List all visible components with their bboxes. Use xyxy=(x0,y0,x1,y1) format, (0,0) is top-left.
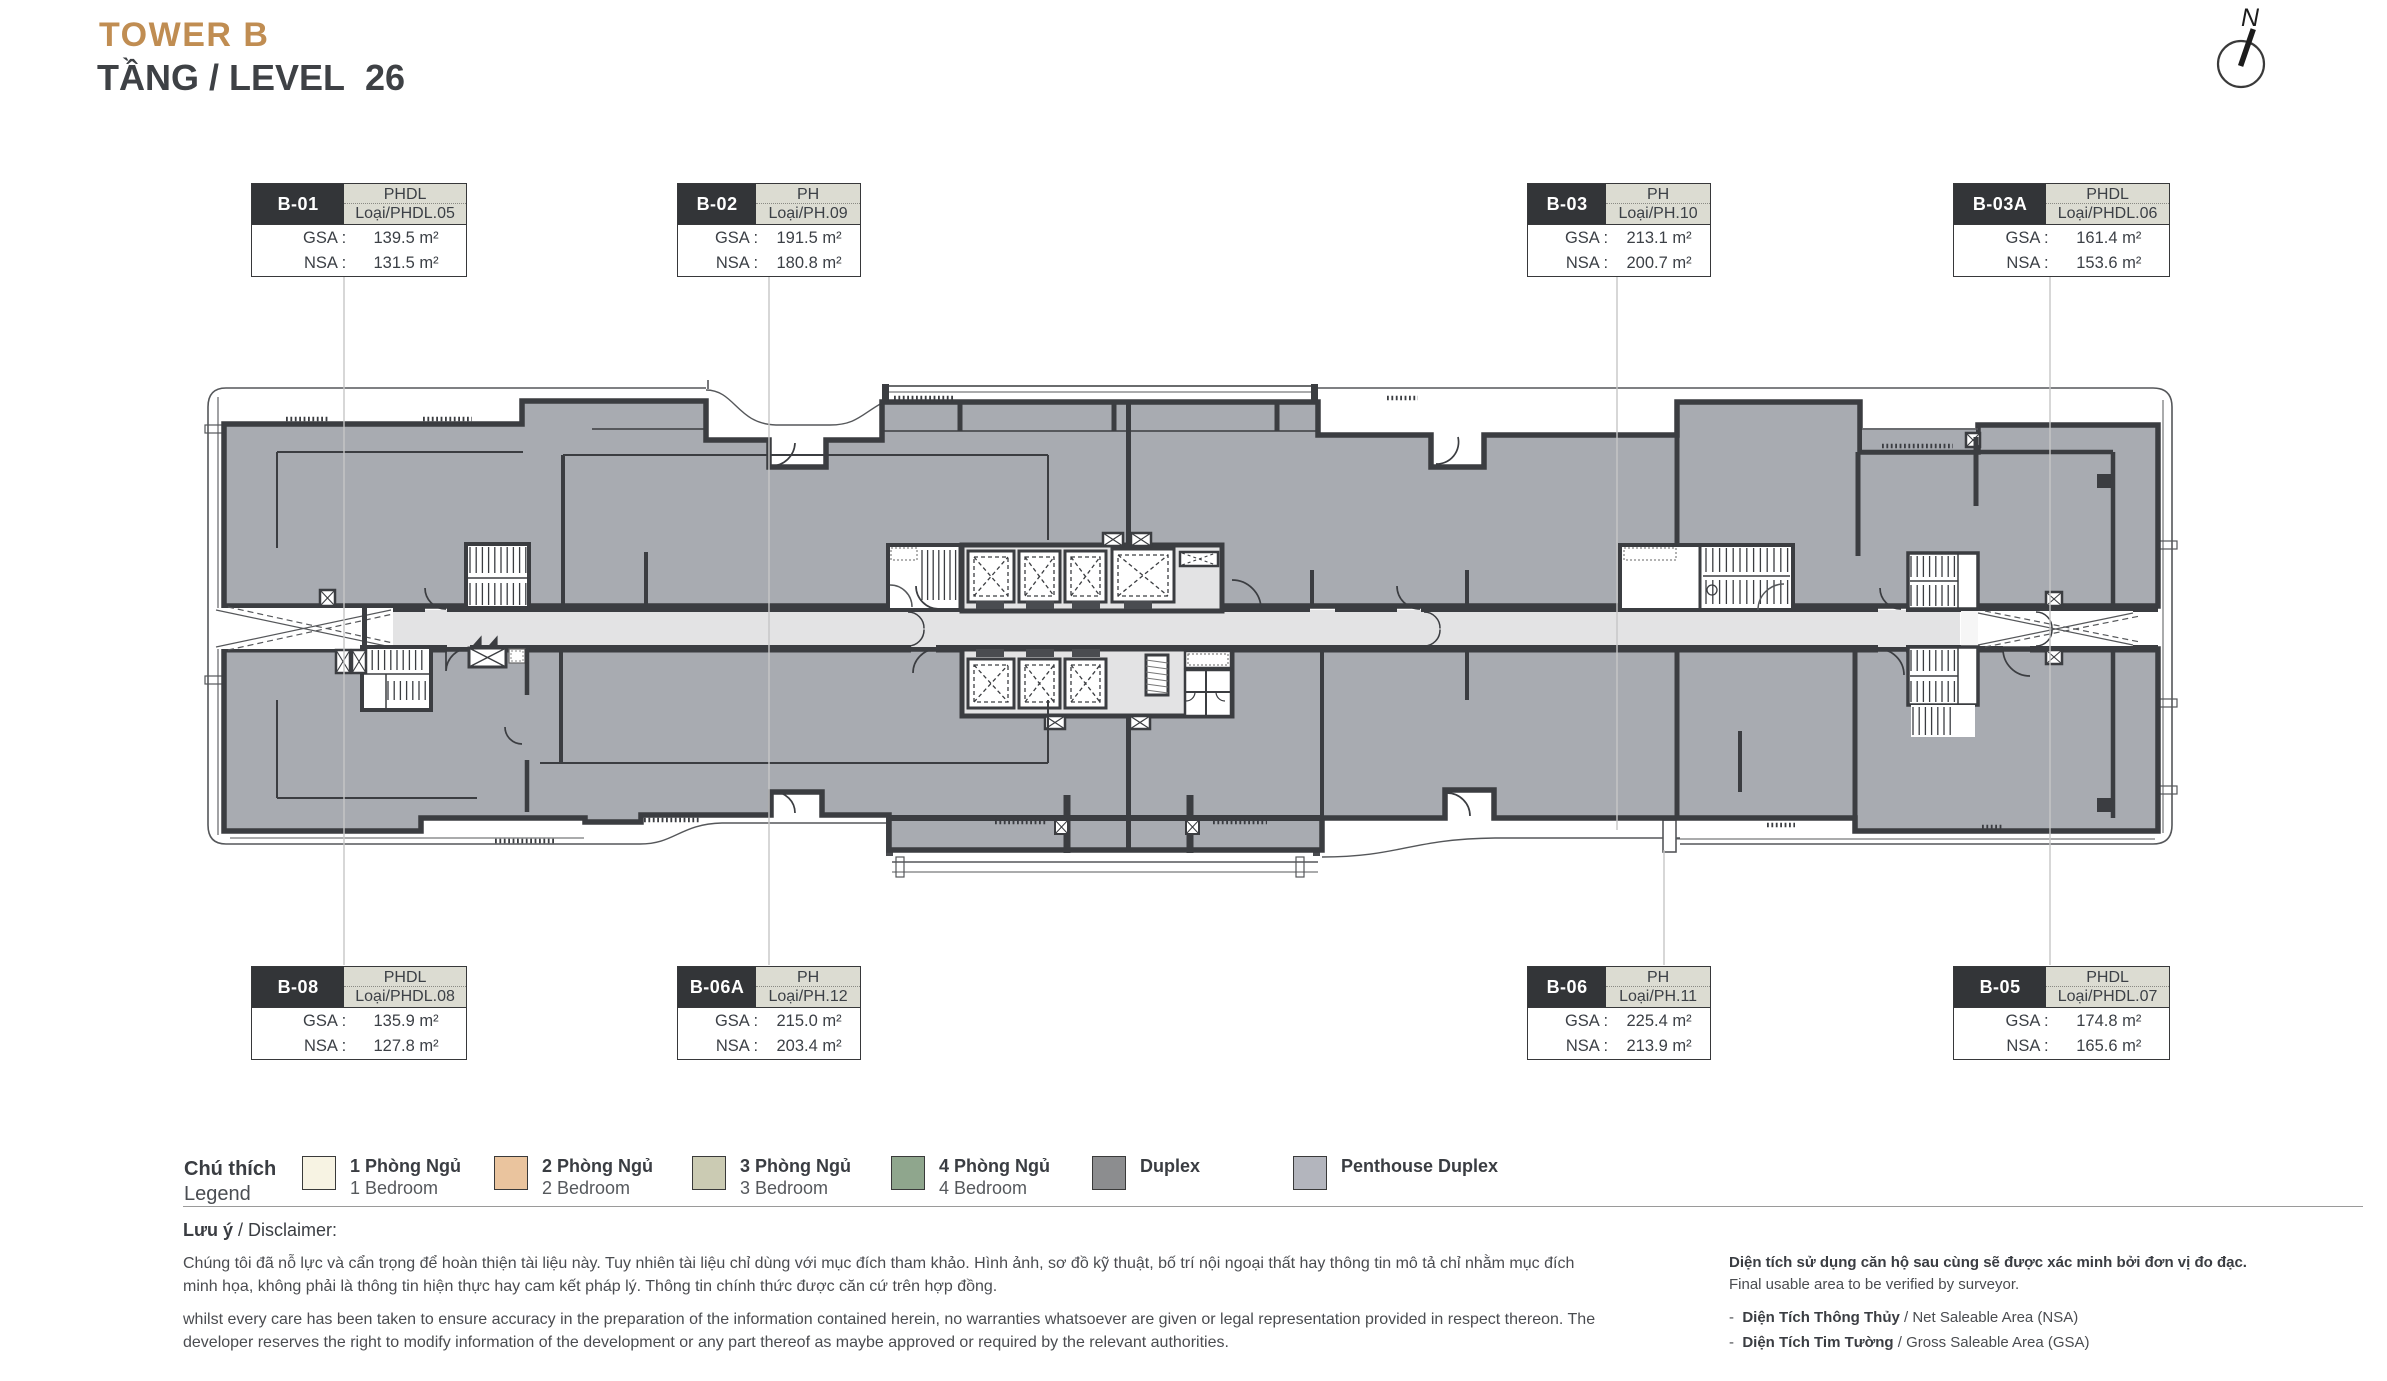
svg-text:N: N xyxy=(2241,4,2260,32)
